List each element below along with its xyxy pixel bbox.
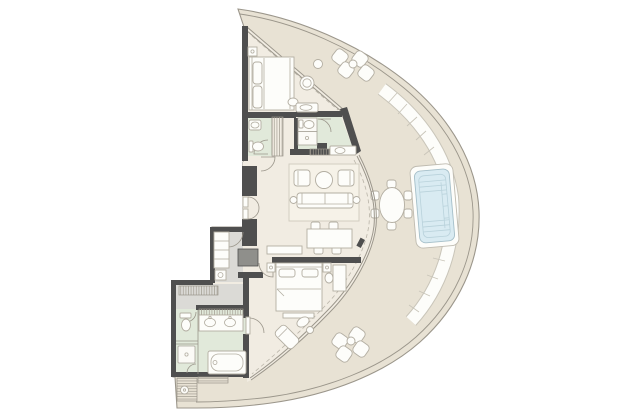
- nightstand: [323, 263, 331, 272]
- wc: [249, 141, 264, 152]
- double-bed: [249, 57, 294, 110]
- drinks-table: [349, 60, 357, 68]
- side-table: [353, 197, 360, 204]
- ensuite-door-leaf: [246, 317, 250, 334]
- floor-plan-svg: [0, 0, 640, 420]
- entry-door-leaf: [243, 197, 248, 207]
- sofa: [297, 193, 353, 208]
- sideboard: [267, 246, 302, 254]
- double-bed: [276, 263, 322, 311]
- nightstand: [267, 263, 275, 272]
- side-table: [290, 197, 297, 204]
- drinks-table: [347, 337, 355, 345]
- floor-plan-canvas: [0, 0, 640, 420]
- double-vanity: [199, 315, 243, 331]
- planter-table: [314, 60, 323, 69]
- dining-table: [307, 229, 352, 248]
- desk-stool: [325, 273, 333, 283]
- utility-drum: [181, 386, 189, 394]
- coffee-table: [316, 172, 333, 189]
- armchair: [294, 170, 310, 186]
- desk: [333, 265, 346, 291]
- wardrobe-strip: [272, 117, 283, 156]
- oval-table: [380, 188, 405, 223]
- wardrobe-run: [179, 286, 218, 295]
- vanity-counter: [199, 309, 243, 315]
- service-shaft: [238, 249, 258, 266]
- entry-door-leaf: [243, 209, 248, 219]
- armchair: [338, 170, 354, 186]
- pool-water: [414, 169, 455, 244]
- foot-bench: [283, 313, 314, 318]
- shower-stall: [298, 132, 317, 146]
- shower: [178, 346, 195, 363]
- side-table: [307, 327, 314, 334]
- plunge-pool: [410, 163, 460, 248]
- shoe-cabinet: [215, 270, 226, 280]
- round-lounge-chair: [300, 76, 314, 90]
- bathtub: [208, 351, 246, 374]
- vanity: [330, 146, 356, 155]
- nightstand: [248, 47, 257, 56]
- washbasin-niche: [296, 103, 318, 112]
